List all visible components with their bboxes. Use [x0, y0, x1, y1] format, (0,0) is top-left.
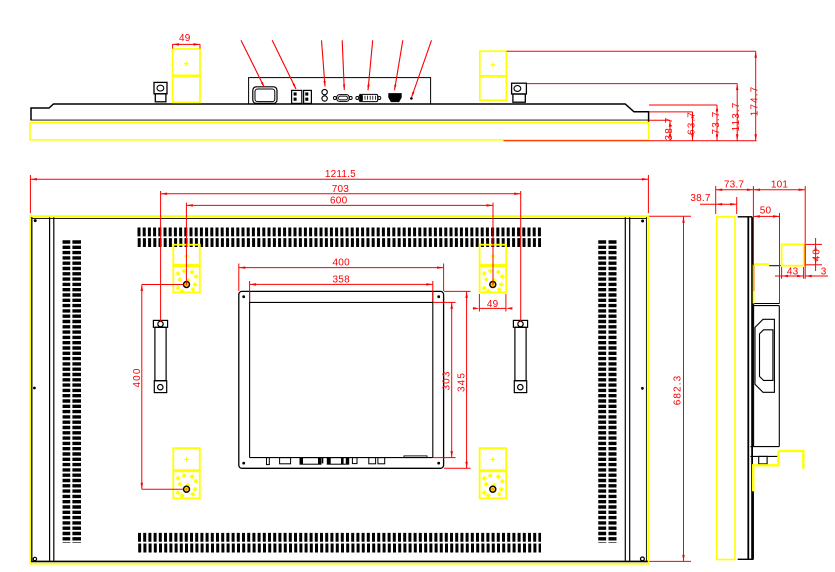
svg-text:345: 345 — [457, 372, 468, 392]
svg-text:1211.5: 1211.5 — [325, 169, 356, 180]
svg-text:358: 358 — [333, 274, 351, 285]
svg-text:38.7: 38.7 — [690, 193, 711, 204]
svg-text:40: 40 — [811, 248, 822, 261]
svg-text:400: 400 — [132, 368, 143, 388]
svg-text:63.7: 63.7 — [687, 111, 698, 135]
svg-text:101: 101 — [771, 180, 789, 191]
svg-text:43: 43 — [787, 267, 799, 278]
svg-text:703: 703 — [332, 184, 350, 195]
svg-text:73.7: 73.7 — [711, 111, 722, 135]
svg-text:113.7: 113.7 — [731, 102, 742, 132]
svg-text:49: 49 — [179, 33, 191, 44]
svg-text:73.7: 73.7 — [724, 180, 745, 191]
svg-text:682.3: 682.3 — [673, 375, 684, 406]
svg-text:174.7: 174.7 — [750, 86, 761, 117]
svg-text:49: 49 — [487, 299, 499, 310]
svg-text:600: 600 — [330, 195, 348, 206]
svg-text:400: 400 — [333, 258, 351, 269]
svg-text:303: 303 — [442, 371, 453, 391]
svg-text:3: 3 — [821, 267, 827, 278]
svg-text:50: 50 — [760, 205, 772, 216]
